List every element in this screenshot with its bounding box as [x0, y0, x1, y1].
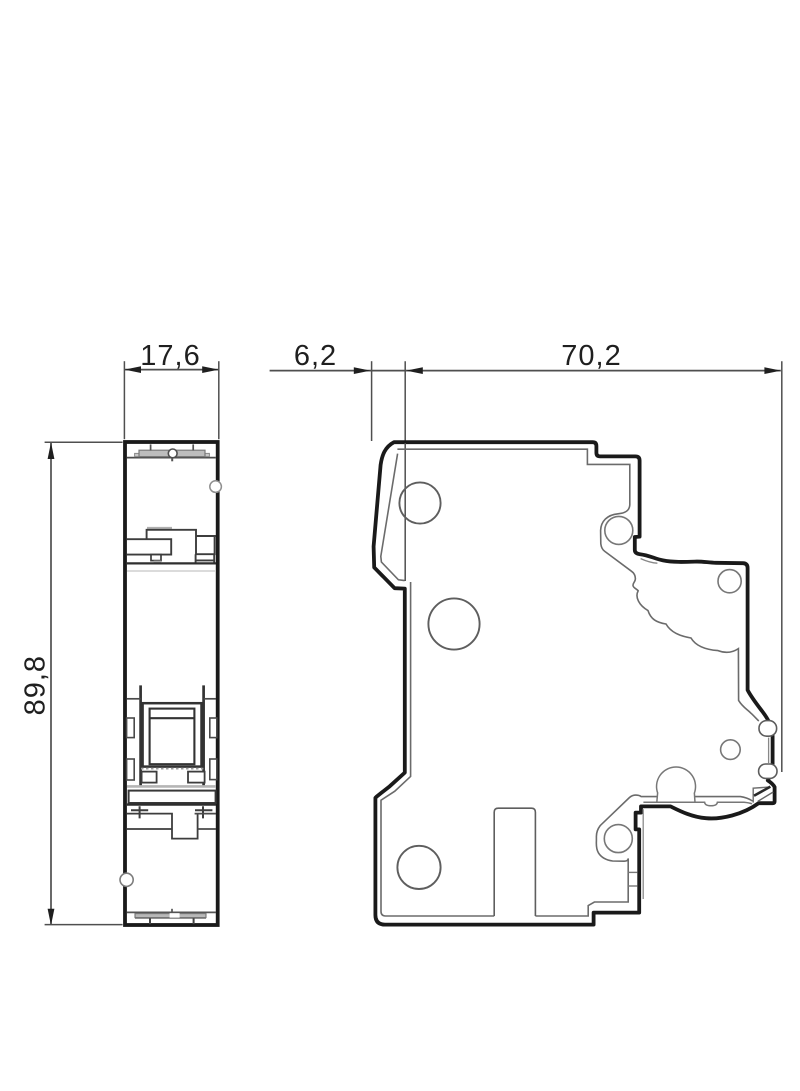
svg-text:6,2: 6,2 [294, 340, 337, 372]
svg-text:70,2: 70,2 [561, 340, 621, 372]
svg-text:89,8: 89,8 [20, 655, 52, 715]
svg-text:17,6: 17,6 [140, 340, 200, 372]
